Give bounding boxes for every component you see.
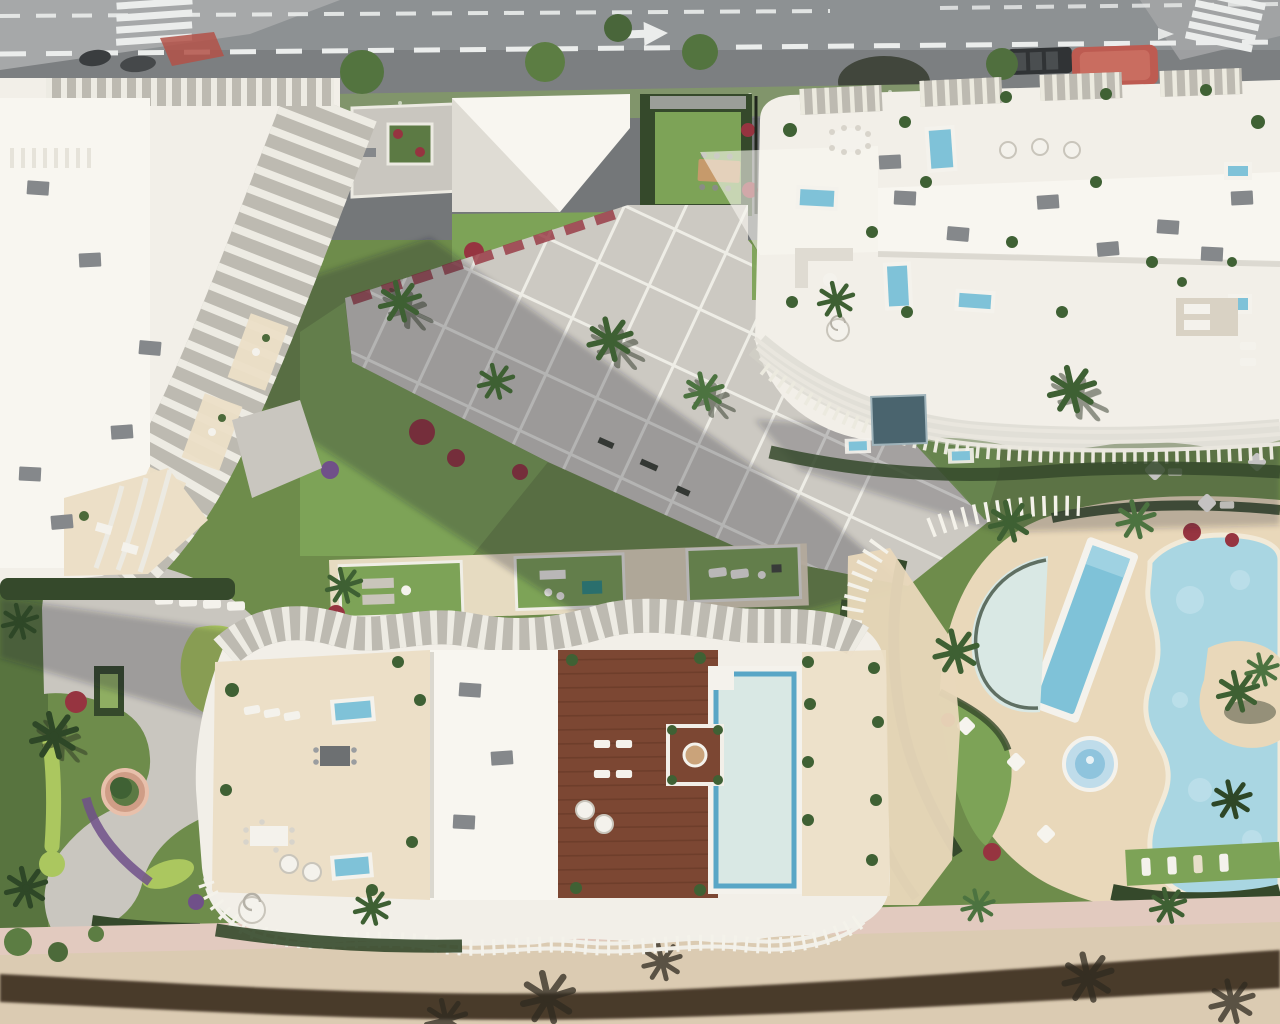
beach-shrub [88, 926, 104, 942]
dining-table-white [250, 826, 288, 846]
west-terrace [212, 650, 430, 900]
hedge-base [0, 578, 235, 600]
street-tree [682, 34, 718, 70]
circular-tree-planter [103, 770, 147, 814]
beach-shrub [4, 928, 32, 956]
center-roof-slab [430, 650, 558, 900]
street-tree [986, 48, 1018, 80]
street-tree [340, 50, 384, 94]
hanging-chair [280, 855, 298, 873]
aerial-site-render [0, 0, 1280, 1024]
dining-table-dark [320, 746, 350, 766]
jacuzzi [1064, 738, 1116, 790]
shaded-pool [871, 395, 927, 445]
terrace-pool [330, 696, 376, 725]
golf-fairway [50, 742, 54, 846]
hanging-chair [303, 863, 321, 881]
fire-pit-lounge [667, 725, 723, 785]
street-tree [525, 42, 565, 82]
roof-lawn-a [339, 561, 463, 617]
terrace-pool [330, 852, 374, 881]
beach-shrub [48, 942, 68, 962]
street-tree [604, 14, 632, 42]
